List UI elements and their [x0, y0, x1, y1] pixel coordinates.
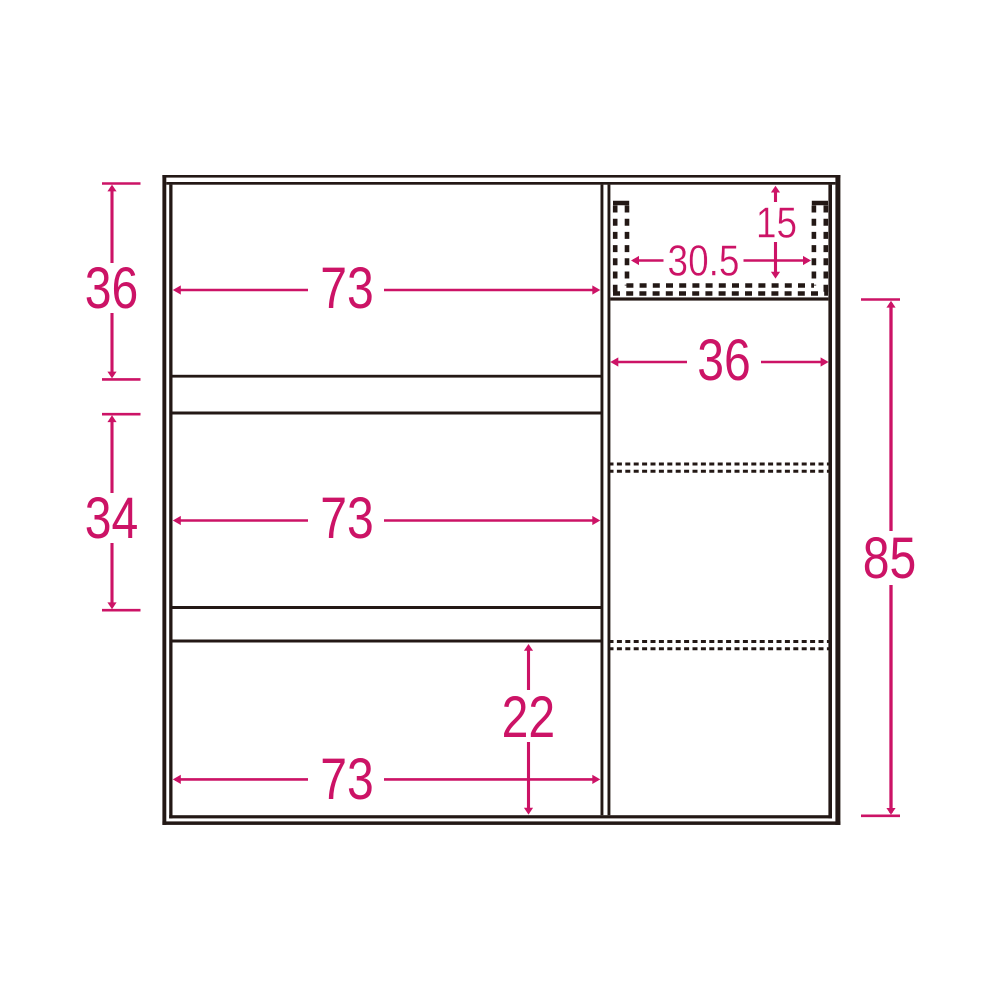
svg-text:30.5: 30.5 — [668, 236, 740, 286]
svg-text:73: 73 — [320, 748, 374, 812]
svg-text:85: 85 — [863, 527, 917, 591]
svg-text:73: 73 — [320, 487, 374, 551]
svg-text:73: 73 — [320, 257, 374, 321]
svg-text:34: 34 — [85, 487, 139, 551]
svg-text:22: 22 — [502, 686, 556, 750]
svg-text:15: 15 — [756, 197, 797, 247]
svg-text:36: 36 — [697, 329, 751, 393]
svg-text:36: 36 — [85, 257, 139, 321]
